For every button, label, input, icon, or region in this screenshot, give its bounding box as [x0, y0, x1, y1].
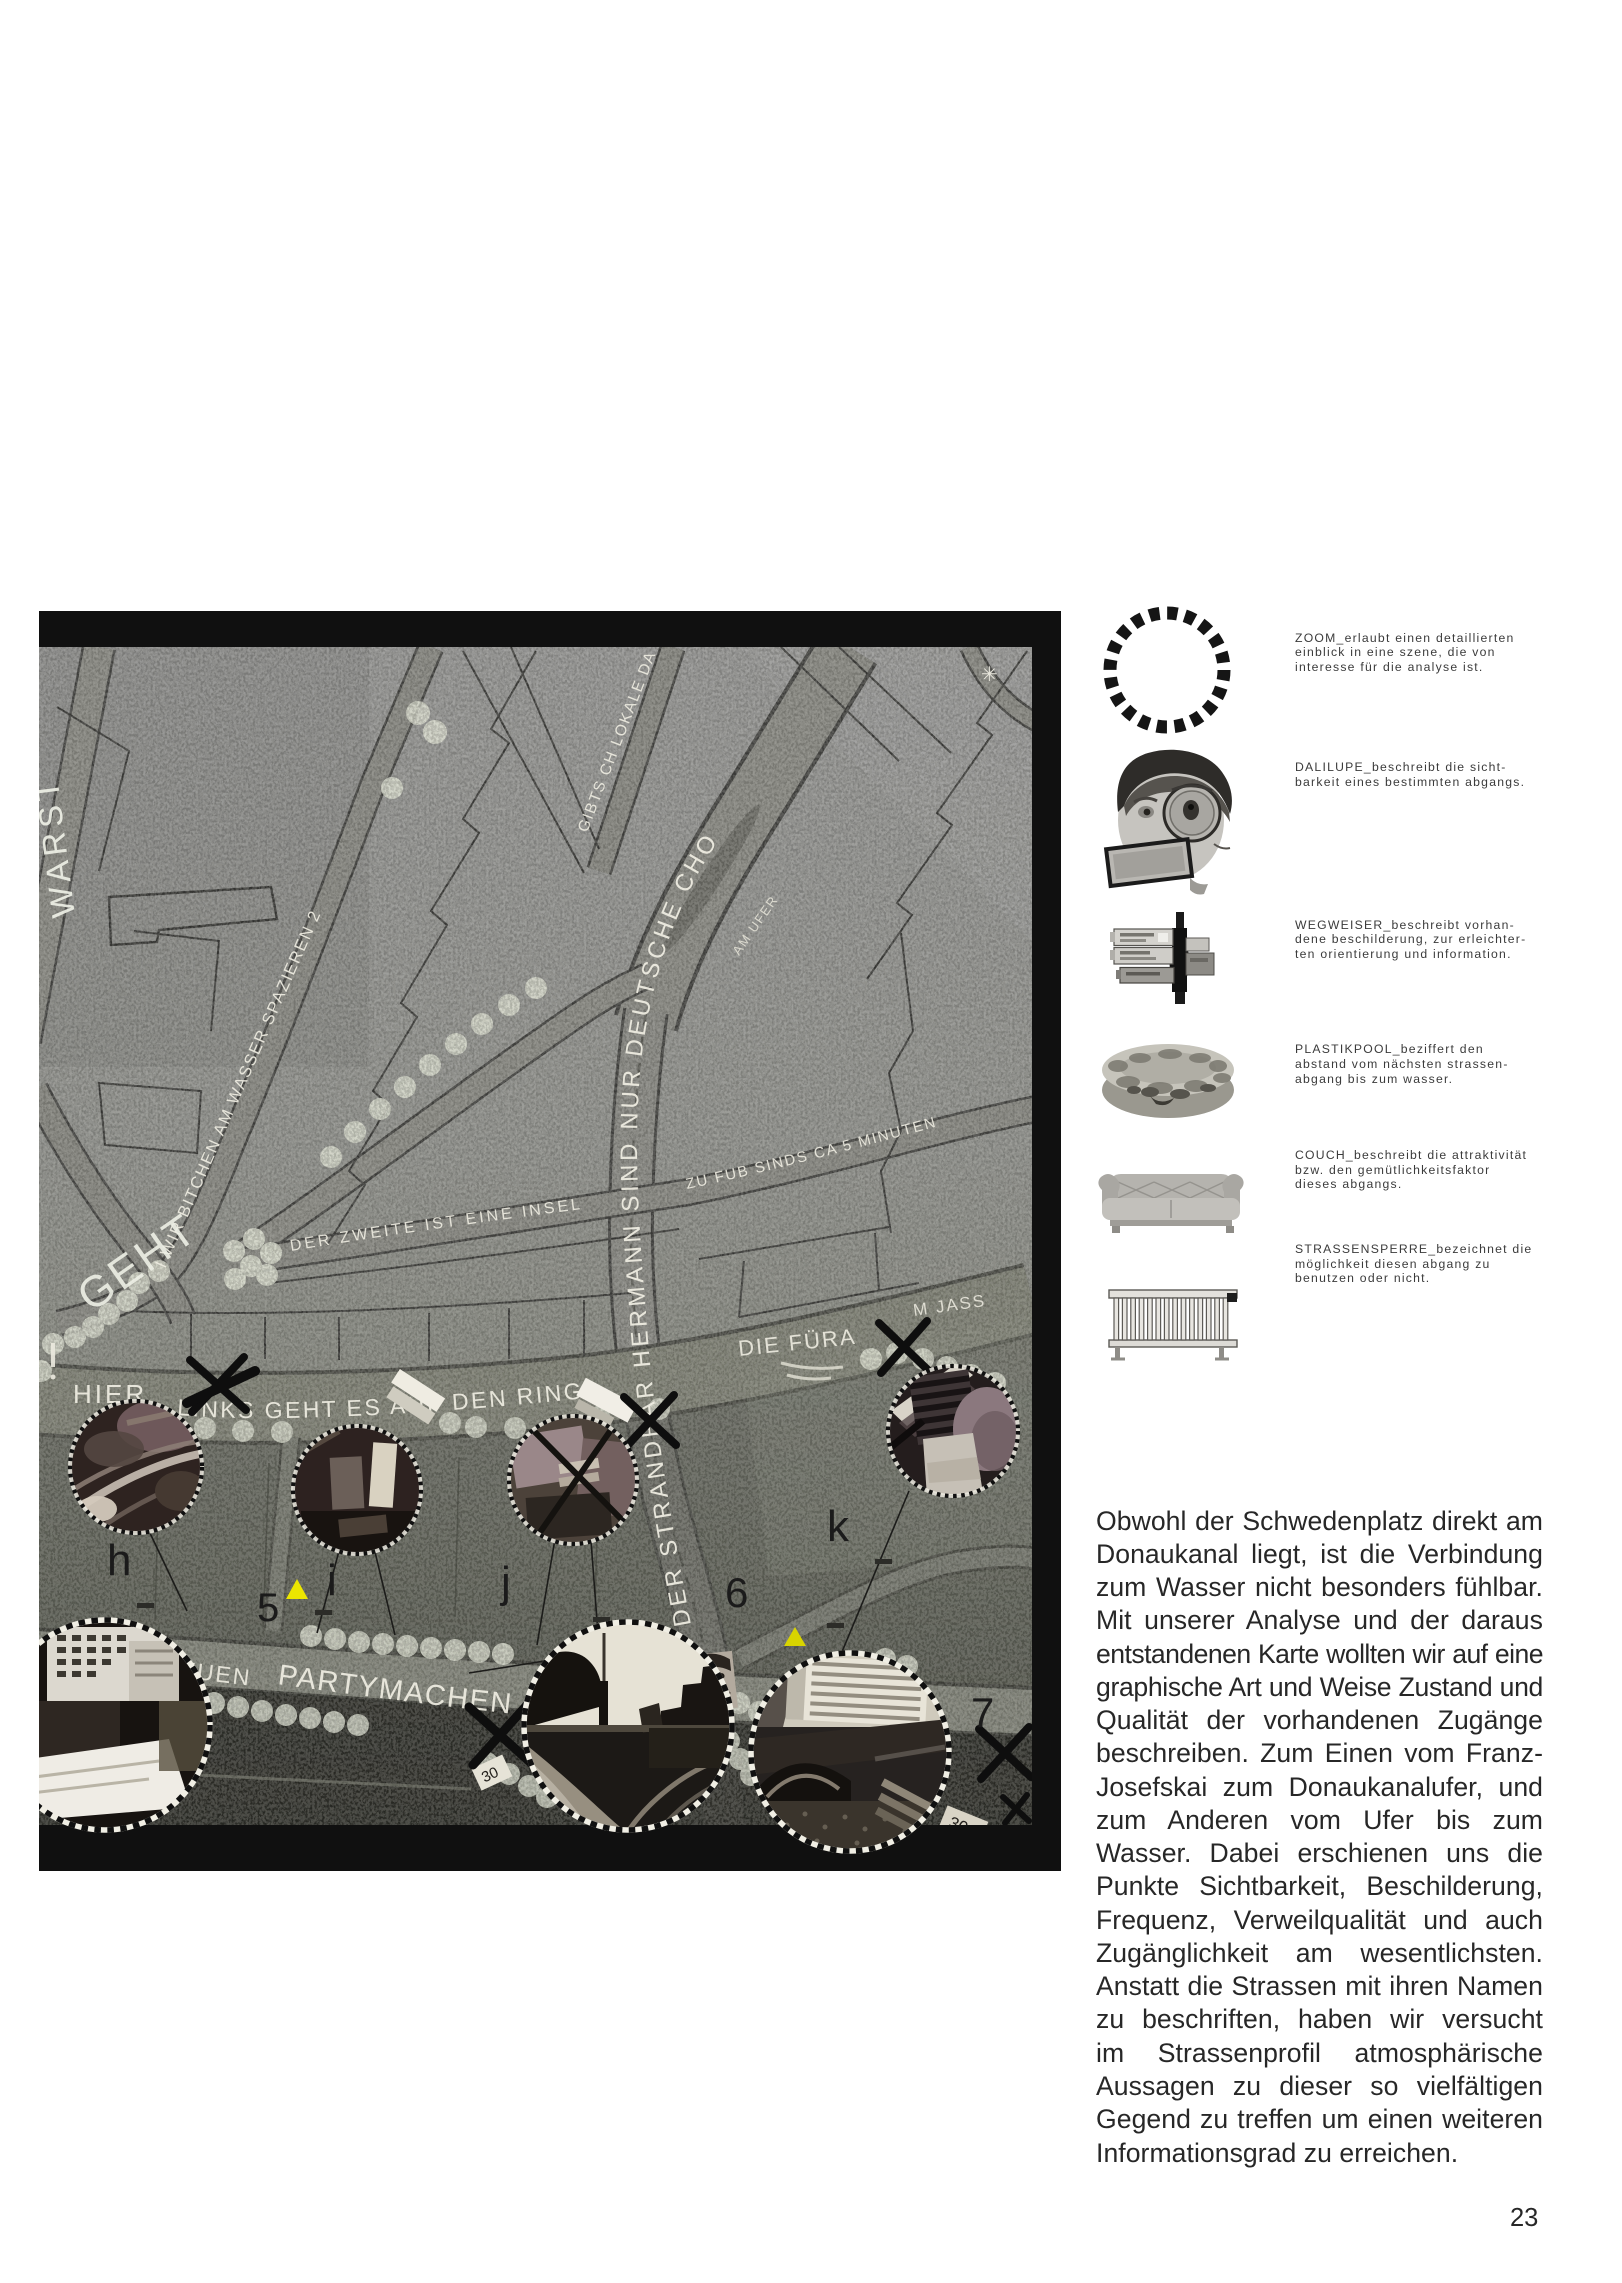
svg-text:i: i	[327, 1556, 337, 1605]
svg-text:7: 7	[971, 1689, 994, 1736]
svg-text:j: j	[499, 1558, 511, 1607]
svg-text:✳: ✳	[981, 664, 998, 686]
svg-text:6: 6	[725, 1569, 748, 1616]
svg-text:5: 5	[257, 1586, 279, 1630]
svg-text:h: h	[107, 1536, 131, 1585]
svg-text:k: k	[827, 1502, 850, 1551]
